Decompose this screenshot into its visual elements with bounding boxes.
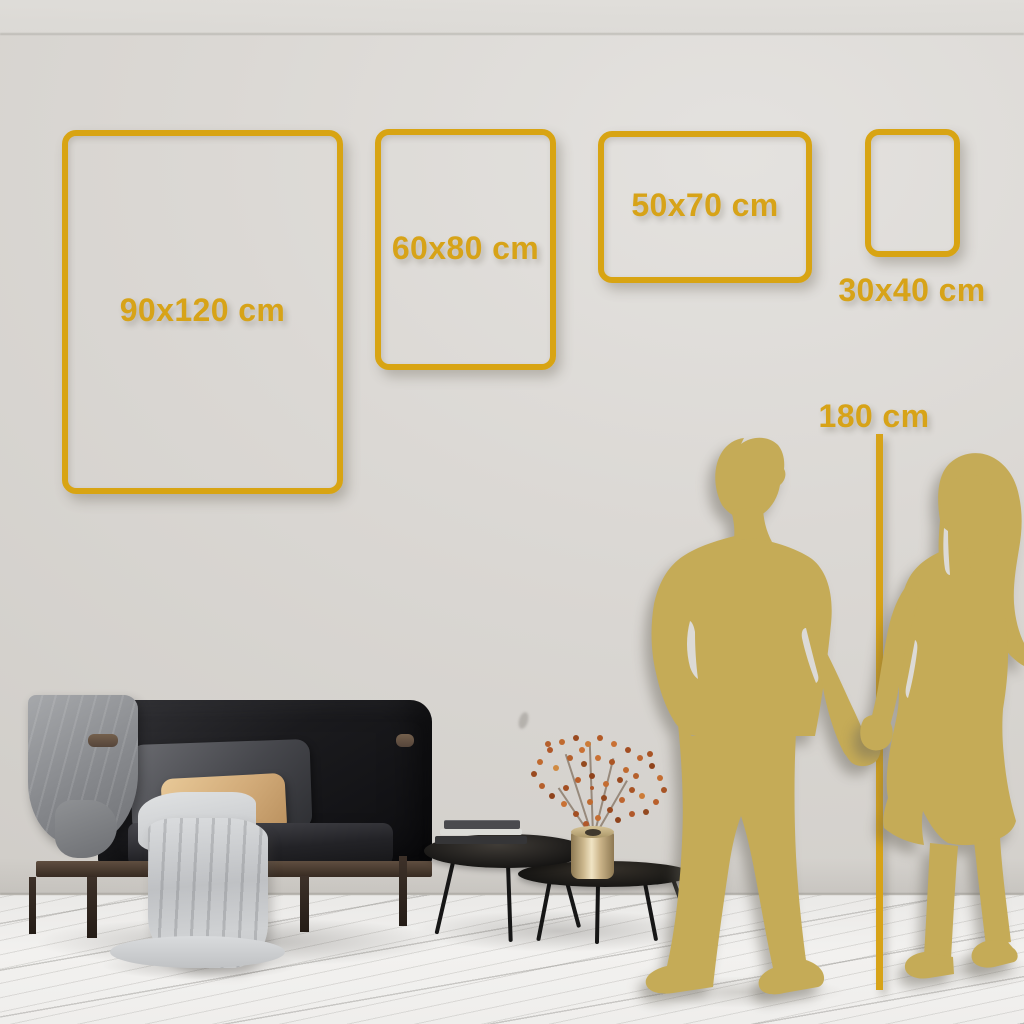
woman-left-leg: [924, 843, 958, 959]
woman-hand: [860, 715, 892, 751]
man-head: [715, 438, 785, 520]
woman-silhouette: [860, 453, 1024, 978]
man-silhouette: [646, 438, 881, 995]
woman-left-foot: [905, 952, 954, 979]
man-legs: [646, 724, 824, 994]
woman-right-foot: [972, 940, 1018, 968]
couple-silhouette: [0, 0, 1024, 1024]
poster-size-guide-scene: 180 cm 90x120 cm 60x80 cm 50x70 cm 30x40…: [0, 0, 1024, 1024]
woman-right-leg: [974, 838, 1011, 946]
